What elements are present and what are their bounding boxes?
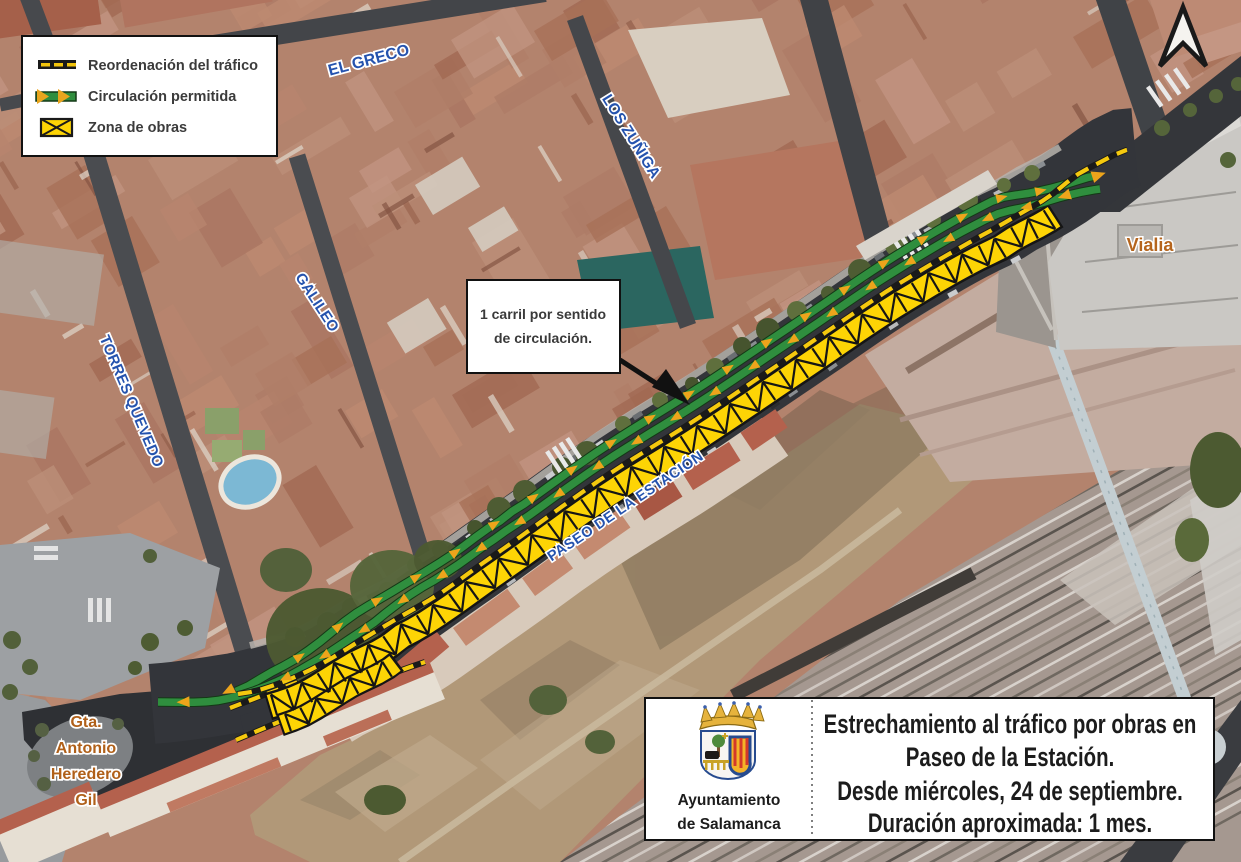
svg-text:Zona de obras: Zona de obras	[88, 120, 187, 136]
svg-text:Gta.: Gta.	[70, 714, 101, 731]
svg-text:Circulación permitida: Circulación permitida	[88, 89, 237, 105]
svg-text:Heredero: Heredero	[51, 766, 121, 783]
svg-text:1 carril por sentido: 1 carril por sentido	[480, 306, 606, 322]
svg-text:Estrechamiento al tráfico por: Estrechamiento al tráfico por obras en	[824, 711, 1197, 740]
svg-text:Paseo de la Estación.: Paseo de la Estación.	[906, 744, 1114, 773]
svg-text:Antonio: Antonio	[56, 740, 117, 757]
svg-text:Ayuntamiento: Ayuntamiento	[678, 792, 781, 809]
svg-text:Reordenación del tráfico: Reordenación del tráfico	[88, 58, 258, 74]
svg-text:Vialia: Vialia	[1127, 235, 1175, 255]
svg-text:de circulación.: de circulación.	[494, 330, 592, 346]
svg-text:Gil: Gil	[75, 792, 96, 809]
svg-text:Duración aproximada: 1 mes.: Duración aproximada: 1 mes.	[868, 810, 1152, 839]
svg-text:de Salamanca: de Salamanca	[677, 816, 781, 833]
svg-text:Desde miércoles, 24 de septiem: Desde miércoles, 24 de septiembre.	[837, 778, 1183, 807]
